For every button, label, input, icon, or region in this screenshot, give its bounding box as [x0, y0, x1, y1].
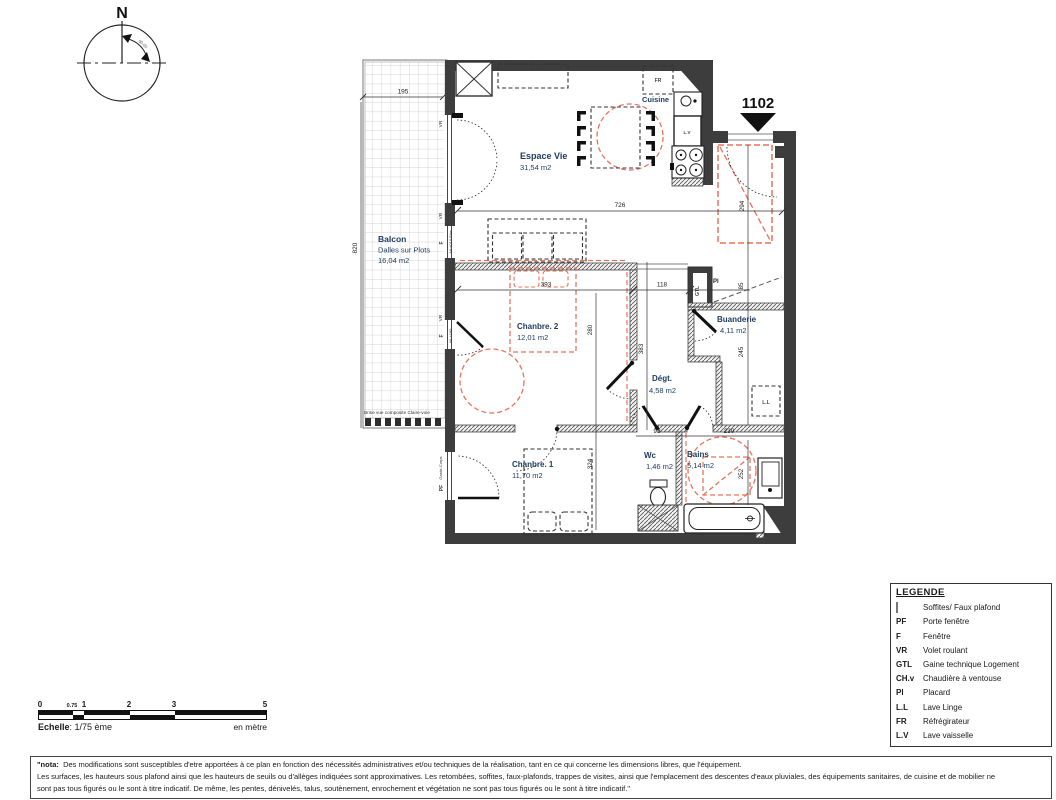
- room-area-chambre2: 12,01 m2: [517, 333, 548, 342]
- floor-plan-sheet: N 90.00 Brise vue composite Claire-voie …: [0, 0, 1056, 800]
- dim-corridor-height: 383: [638, 343, 645, 354]
- unit-marker: 1102: [740, 95, 776, 132]
- legend-key: CH.v: [896, 674, 923, 683]
- room-label-cuisine: Cuisine: [642, 95, 669, 104]
- scale-ticks: 0 0.75 1 2 3 5: [38, 700, 266, 710]
- nota-line-1: "nota: Des modifications sont susceptibl…: [37, 759, 1045, 771]
- dim-balcony-width: 195: [398, 89, 409, 96]
- room-label-chambre2: Chanbre. 2: [517, 322, 559, 331]
- label-vr-3: VR: [438, 314, 444, 321]
- dim-entry-depth: 294: [739, 200, 746, 211]
- label-f-1: F: [439, 241, 445, 244]
- scale-ratio: : 1/75 ème: [70, 722, 113, 732]
- compass-arrowhead-north: [122, 34, 132, 43]
- room-label-buanderie: Buanderie: [717, 315, 757, 324]
- label-pf: PF: [439, 485, 445, 491]
- legend-row-soffites: Soffites/ Faux plafond: [896, 603, 1046, 612]
- room-area-espace-vie: 31,54 m2: [520, 163, 551, 172]
- legend-label: Lave vaisselle: [923, 731, 973, 740]
- scale-bar-graphic: [38, 710, 267, 720]
- legend: LEGENDE Soffites/ Faux plafond PF Porte …: [890, 583, 1052, 747]
- room-label-bains: Bains: [687, 450, 709, 459]
- dim-bains-height: 252: [738, 468, 745, 479]
- legend-row-ll: L.L Lave Linge: [896, 703, 1046, 712]
- door-leaf-wc: [643, 406, 657, 428]
- legend-key: F: [896, 632, 923, 641]
- legend-key: FR: [896, 717, 923, 726]
- label-vr-2: VR: [438, 212, 444, 219]
- dim-balcony-height: 820: [352, 242, 359, 253]
- fridge-label: FR: [655, 78, 662, 84]
- dishwasher-label: L.V: [683, 130, 690, 135]
- door-leaf-bains: [687, 406, 700, 428]
- balcony-note: Brise vue composite Claire-voie: [364, 410, 430, 415]
- sofa: [488, 219, 586, 262]
- room-area-wc: 1,46 m2: [646, 462, 673, 471]
- label-f-2: F: [439, 334, 445, 337]
- scale-tick: 0.75: [67, 703, 78, 709]
- legend-row-gtl: GTL Gaine technique Logement: [896, 660, 1046, 669]
- legend-label: Réfrégirateur: [923, 717, 970, 726]
- dim-chambre2-width: 393: [541, 282, 552, 289]
- legend-label: Chaudière à ventouse: [923, 674, 1001, 683]
- scale-tick: 0: [38, 700, 42, 709]
- nota-text: sont pas tous figurés ou le sont à titre…: [37, 784, 630, 793]
- entrance-triangle-icon: [740, 113, 776, 132]
- room-area-bains: 5,14 m2: [687, 461, 714, 470]
- room-label-espace-vie: Espace Vie: [520, 151, 567, 161]
- legend-label: Gaine technique Logement: [923, 660, 1019, 669]
- nota-text: Les surfaces, les hauteurs sous plafond …: [37, 772, 995, 781]
- room-label-degagement: Dégt.: [652, 374, 672, 383]
- dim-bains-width: 230: [724, 428, 735, 435]
- scale-unit: en mètre: [233, 722, 267, 732]
- dim-wc-width: 93: [653, 428, 661, 435]
- legend-row-f: F Fenêtre: [896, 632, 1046, 641]
- soffite-swatch: [896, 602, 898, 613]
- partition-walls: [455, 178, 784, 538]
- kitchen-sink: [674, 92, 702, 116]
- legend-row-pf: PF Porte fenêtre: [896, 617, 1046, 626]
- dim-chambre2-height: 280: [587, 324, 594, 335]
- dim-living-width: 726: [615, 202, 626, 209]
- legend-row-chv: CH.v Chaudière à ventouse: [896, 674, 1046, 683]
- legend-key: VR: [896, 646, 923, 655]
- balcony: Brise vue composite Claire-voie Balcon D…: [352, 60, 447, 428]
- legend-row-vr: VR Volet roulant: [896, 646, 1046, 655]
- room-label-wc: Wc: [644, 451, 657, 460]
- scale-tick: 5: [263, 700, 267, 709]
- scale-tick: 3: [172, 700, 176, 709]
- door-leaf-chambre2-window: [457, 322, 483, 347]
- dim-corridor-width: 118: [657, 282, 668, 289]
- legend-key: Pl: [896, 688, 923, 697]
- legend-label: Soffites/ Faux plafond: [923, 603, 1000, 612]
- legend-label: Lave Linge: [923, 703, 962, 712]
- legend-row-pl: Pl Placard: [896, 688, 1046, 697]
- dim-gtl-gap: 85: [738, 282, 745, 290]
- scale-caption: Echelle: 1/75 ème: [38, 722, 112, 732]
- legend-key: L.V: [896, 731, 923, 740]
- legend-key: PF: [896, 617, 923, 626]
- legend-key: GTL: [896, 660, 923, 669]
- compass-bearing-label: 90.00: [137, 39, 149, 50]
- label-vr-1: VR: [438, 120, 444, 127]
- label-alt180: Alt +180: [448, 328, 453, 344]
- entry-door-arc: [727, 147, 777, 197]
- nota-prefix: "nota:: [37, 760, 59, 769]
- legend-row-fr: FR Réfrégirateur: [896, 717, 1046, 726]
- room-type-balcon: Dalles sur Plots: [378, 246, 430, 255]
- north-label: N: [116, 5, 128, 22]
- dining-chairs: [577, 111, 655, 166]
- north-arrow: N 90.00: [77, 5, 167, 101]
- nota-line-3: sont pas tous figurés ou le sont à titre…: [37, 783, 1045, 795]
- dim-chambre1-height: 324: [587, 458, 594, 469]
- toilet: [650, 480, 667, 487]
- room-area-buanderie: 4,11 m2: [720, 326, 747, 335]
- legend-row-lv: L.V Lave vaisselle: [896, 731, 1046, 740]
- scale-bar: 0 0.75 1 2 3 5 Echelle: 1/75 ème en mètr…: [38, 700, 266, 732]
- room-label-balcon: Balcon: [378, 234, 406, 244]
- duct-box: [456, 62, 492, 96]
- gtl-label: GTL: [695, 286, 701, 296]
- placard-label: Pl: [713, 279, 719, 285]
- room-label-chambre1: Chanbre. 1: [512, 460, 554, 469]
- washing-machine-label: L.L: [762, 400, 770, 406]
- nota-line-2: Les surfaces, les hauteurs sous plafond …: [37, 771, 1045, 783]
- label-garde-corps: Garde-Corps: [438, 456, 443, 479]
- scale-tick: 2: [127, 700, 131, 709]
- legend-label: Volet roulant: [923, 646, 967, 655]
- legend-label: Placard: [923, 688, 950, 697]
- kitchen-fixtures: L.V: [670, 92, 704, 178]
- scale-label: Echelle: [38, 722, 70, 732]
- legend-label: Porte fenêtre: [923, 617, 969, 626]
- room-area-degagement: 4,58 m2: [649, 386, 676, 395]
- dining-table: [591, 107, 640, 168]
- legend-title: LEGENDE: [896, 587, 1046, 598]
- dim-buanderie-height: 245: [738, 346, 745, 357]
- room-area-balcon: 16,04 m2: [378, 256, 409, 265]
- legend-label: Fenêtre: [923, 632, 951, 641]
- legend-key: L.L: [896, 703, 923, 712]
- room-area-chambre1: 11,70 m2: [512, 471, 543, 480]
- nota-text: Des modifications sont susceptibles d'et…: [63, 760, 742, 769]
- nota-box: "nota: Des modifications sont susceptibl…: [30, 756, 1052, 799]
- door-leaf-chambre2: [607, 363, 632, 389]
- unit-number: 1102: [742, 95, 775, 112]
- window-pf-living: [444, 115, 456, 203]
- entry-door-hinge-block: [775, 146, 784, 158]
- label-alt010: Alt +010 Fixe: [448, 230, 453, 254]
- scale-tick: 1: [82, 700, 86, 709]
- door-leaf-buanderie: [694, 311, 716, 332]
- window-pf-chambre1: [444, 452, 456, 500]
